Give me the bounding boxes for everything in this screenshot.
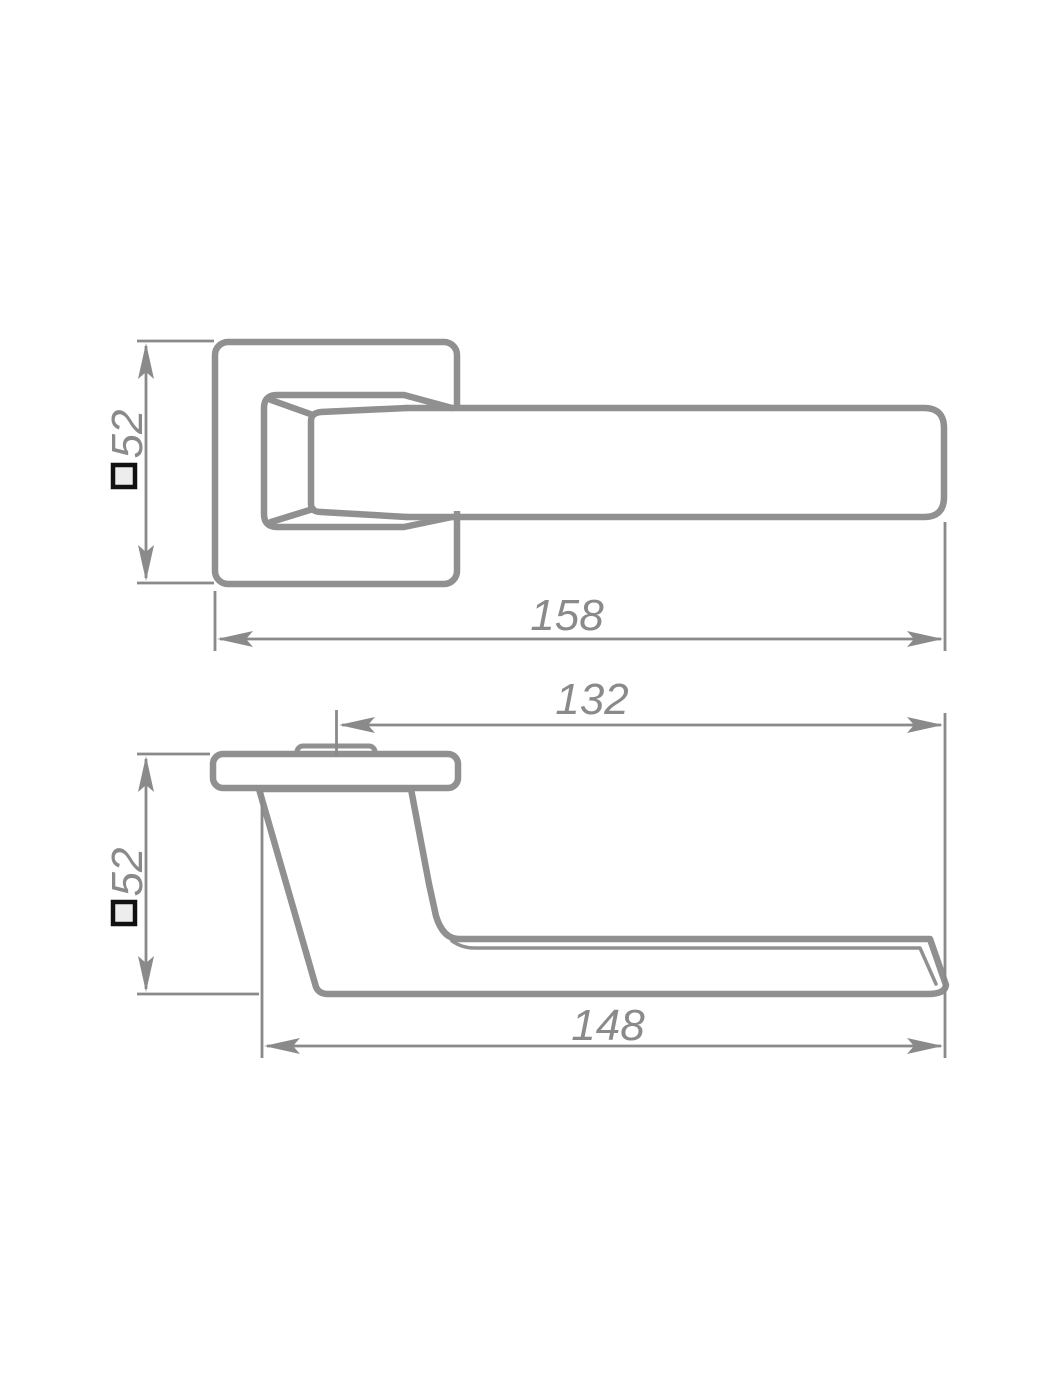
square-symbol [113, 902, 135, 924]
side-view [213, 746, 946, 994]
side-rose-outline [213, 754, 458, 788]
drawing-canvas: 52 158 132 52 [0, 0, 1050, 1400]
dimension-label-148: 148 [571, 1001, 645, 1050]
front-rose-size-dimension: 52 [103, 341, 214, 583]
front-view [215, 342, 944, 584]
dimension-label-158: 158 [530, 591, 604, 640]
side-neck-grip-outline [259, 789, 946, 994]
square-symbol [113, 465, 135, 487]
dimension-label-front-52: 52 [103, 410, 152, 459]
technical-drawing-svg: 52 158 132 52 [0, 0, 1050, 1400]
dimension-label-side-52: 52 [103, 848, 152, 897]
front-lever-bar-fill [320, 411, 942, 511]
dimension-label-132: 132 [555, 675, 628, 724]
